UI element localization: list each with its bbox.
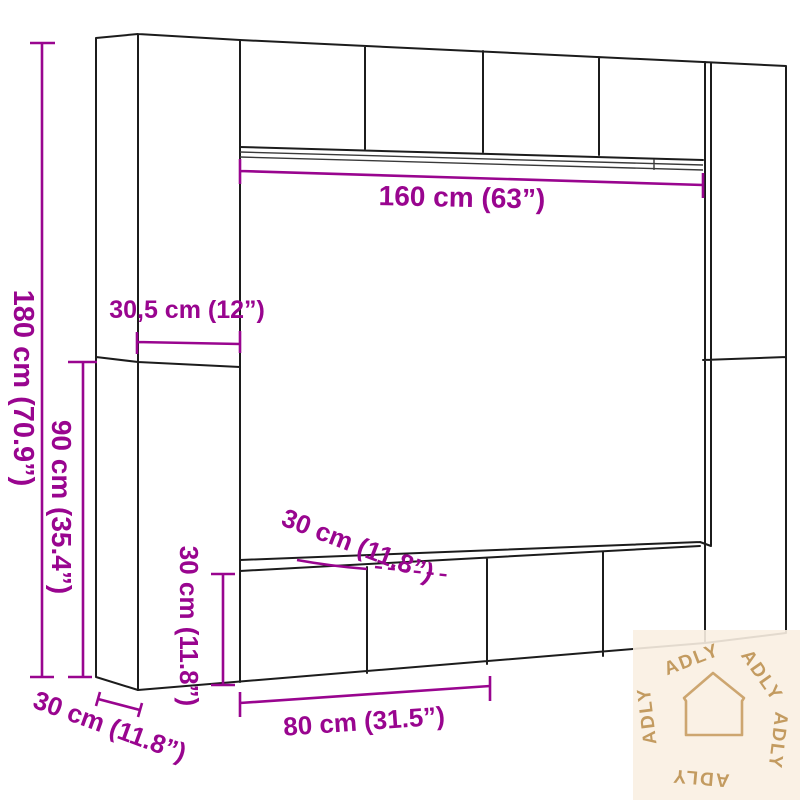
top-cabinet-row-outline	[240, 40, 703, 160]
watermark: ADLY ADLY ADLY ADLY ADLY	[633, 630, 800, 800]
column-width-label: 30,5 cm (12”)	[109, 296, 265, 324]
left-column-outline	[96, 34, 240, 690]
dimension-diagram: ADLY ADLY ADLY ADLY ADLY 160 cm (63”) 30…	[0, 0, 800, 800]
low-cabinet-height-dim-line	[211, 574, 235, 685]
total-height-label: 180 cm (70.9”)	[7, 290, 39, 487]
column-width-dim-line	[137, 331, 240, 354]
top-shelf-lines	[240, 152, 703, 170]
diagram-canvas: ADLY ADLY ADLY ADLY ADLY 160 cm (63”) 30…	[0, 0, 800, 800]
total-width-label: 160 cm (63”)	[378, 180, 545, 214]
half-height-label: 90 cm (35.4”)	[46, 420, 77, 594]
side-depth-label: 30 cm (11.8”)	[29, 685, 190, 768]
top-depth-label: 30 cm (11.8”)	[278, 502, 439, 588]
low-cabinet-width-label: 80 cm (31.5”)	[282, 700, 446, 741]
right-column-outline	[703, 62, 786, 643]
low-cabinet-height-label: 30 cm (11.8”)	[174, 546, 204, 706]
